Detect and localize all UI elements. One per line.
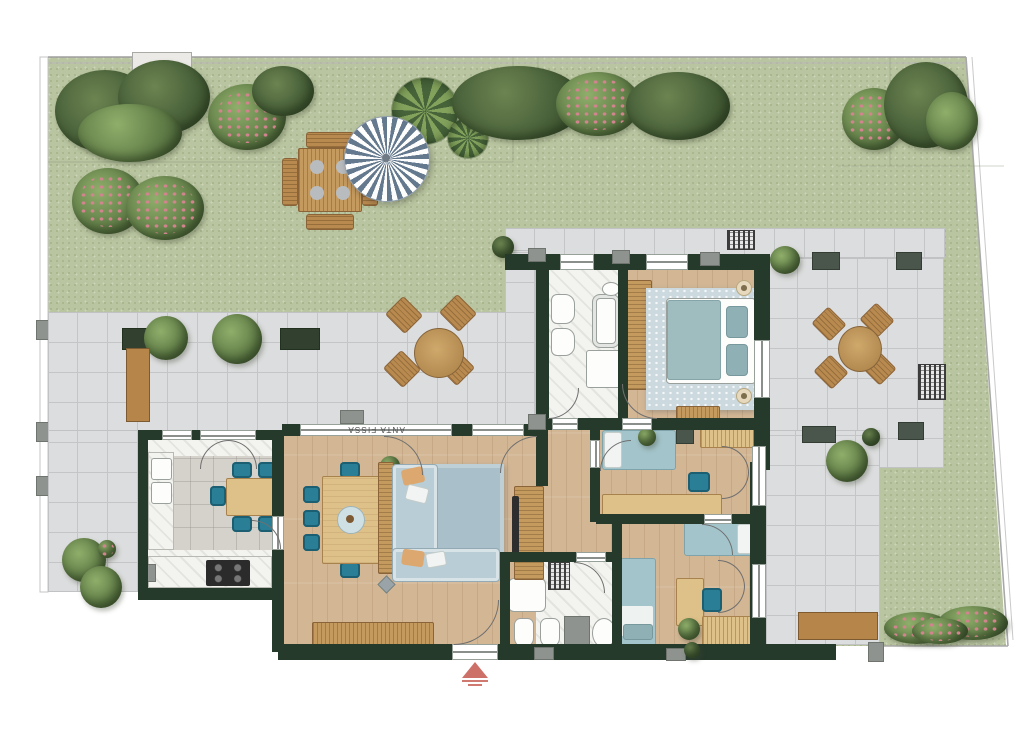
door-gap-bathroom2 (576, 552, 606, 562)
terrace-south-stub (868, 642, 884, 662)
terrace-right-bush (770, 246, 800, 274)
patio2-table (838, 326, 882, 372)
garden-plate-1 (310, 160, 324, 174)
door-gap-masterbath (552, 418, 578, 430)
parasol-pole (382, 154, 390, 162)
tv-screen (512, 496, 519, 558)
wall-bathroom2-left (500, 552, 510, 652)
bed-pillow-1 (726, 306, 748, 338)
wall-kitchen-left (138, 430, 148, 598)
dining-centerpiece-dot (346, 515, 354, 523)
dining-chair-l2 (303, 510, 320, 527)
roof-vent-grate-top (727, 230, 755, 250)
garden-plate-4 (336, 186, 350, 200)
skylight-4 (898, 422, 924, 440)
terrace-bush-2 (212, 314, 262, 364)
window-fixed-panel-text: ANTA FISSA (347, 426, 405, 435)
floor-plan-canvas: ANTA FISSA (0, 0, 1024, 734)
bed-pillow-2 (726, 344, 748, 376)
door-gap-bedroom2 (590, 440, 600, 468)
door-gap-masterbed (622, 418, 652, 430)
bathroom2-radiator (548, 562, 570, 590)
nightstand-lamp-1 (736, 280, 752, 296)
entrance-door-gap (452, 644, 498, 660)
bedroom2-shelf (700, 428, 754, 448)
sideboard (312, 622, 434, 646)
bidet (551, 328, 575, 356)
window-kitchen-1 (162, 430, 192, 440)
skylight-3 (802, 426, 836, 443)
flower-bed-c (912, 618, 968, 644)
entrance-marker-triangle (462, 662, 488, 678)
wall-terrace-south (750, 644, 836, 660)
window-master-east (754, 340, 770, 398)
kitchen-chair-5 (210, 486, 226, 506)
door-gap-bedroom3 (704, 514, 732, 524)
wall-kitchen-bottom (138, 588, 282, 600)
shower-2 (508, 578, 546, 612)
wall-living-window-pier-1 (282, 424, 300, 436)
terrace-bush-1 (144, 316, 188, 360)
dining-chair-bottom (340, 562, 360, 578)
hedge-topright-b (926, 92, 978, 150)
garden-chair-left (282, 158, 298, 206)
pillar-stub-4 (340, 410, 364, 424)
terrace-bench-west (126, 348, 150, 422)
bedroom2-chair (688, 472, 710, 492)
window-fixed-panel-label: ANTA FISSA (300, 423, 452, 437)
garden-plate-3 (310, 186, 324, 200)
patio1-table (414, 328, 464, 378)
planter-left-2 (280, 328, 320, 350)
double-bed-duvet (667, 300, 721, 380)
pillar-stub-6 (534, 647, 554, 660)
flower-bush-left-2 (126, 176, 204, 240)
wall-living-window-pier-2 (452, 424, 472, 436)
skylight-2 (896, 252, 922, 270)
window-bedroom2-east (752, 446, 766, 506)
shower-master (586, 350, 622, 388)
hedge-topleft-d (252, 66, 314, 116)
pillar-stub-2 (612, 250, 630, 264)
window-living-2 (472, 424, 524, 436)
kitchen-sink-2 (151, 482, 172, 504)
hedge-center-b (626, 72, 730, 140)
window-bedroom-north (646, 254, 688, 270)
window-bedroom3-east (752, 564, 766, 618)
dining-chair-l1 (303, 486, 320, 503)
nightstand-lamp-2 (736, 388, 752, 404)
kitchen-sink-1 (151, 458, 172, 480)
sofa-cushion-tan-2 (401, 549, 425, 568)
pillar-stub-3 (700, 252, 720, 266)
bathtub (592, 294, 620, 348)
entrance-marker-icon (460, 662, 490, 688)
dining-chair-l3 (303, 534, 320, 551)
hedge-topleft-c (78, 104, 182, 162)
entrance-mini-plant (684, 642, 700, 658)
bedroom2-stool (676, 428, 694, 444)
terrace-right-plant-small (862, 428, 880, 446)
bedroom3-bed-b-pillow (623, 624, 653, 640)
kitchen-chair-3 (232, 516, 252, 532)
cooktop (206, 560, 250, 586)
garden-chair-bottom (306, 214, 354, 230)
terrace-right-plant (826, 440, 868, 482)
wall-bedroom3-left (612, 524, 622, 652)
window-bathroom-north (560, 254, 594, 270)
toilet (551, 294, 575, 324)
bedroom3-plant (678, 618, 700, 640)
terrace-sw-flower (98, 540, 116, 558)
entrance-marker-bar-1 (462, 680, 488, 682)
window-kitchen-door (200, 430, 256, 440)
pillar-stub-7 (666, 648, 686, 661)
terrace-bench-south (798, 612, 878, 640)
skylight-1 (812, 252, 840, 270)
wall-corridor-left (536, 424, 548, 486)
pillar-stub-5 (528, 414, 546, 430)
bedroom2-plant (638, 428, 656, 446)
terrace-house-west (505, 250, 536, 432)
roof-vent-grate-right (918, 364, 946, 400)
entrance-marker-bar-2 (468, 684, 482, 686)
terrace-sw-bush-2 (80, 566, 122, 608)
pillar-stub-1 (528, 248, 546, 262)
